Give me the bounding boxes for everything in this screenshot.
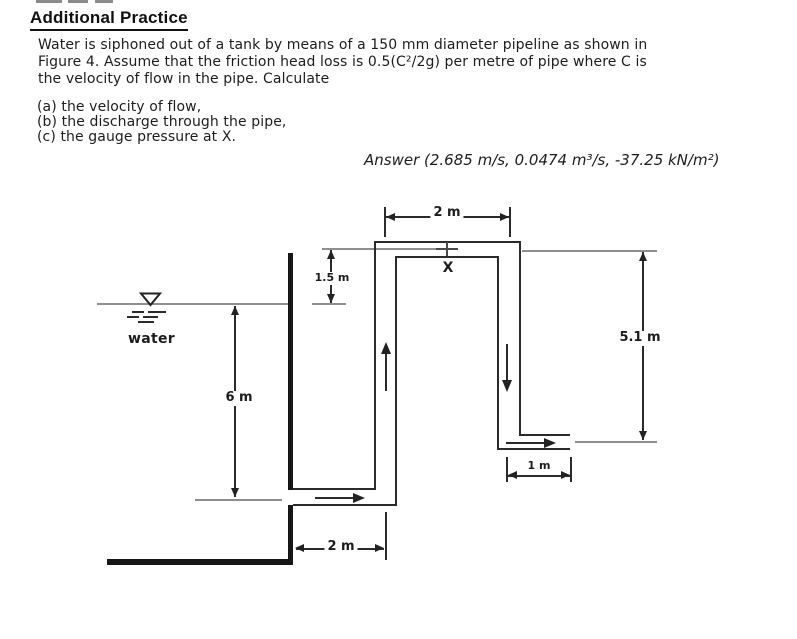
question-item-b: (b) the discharge through the pipe, (37, 115, 286, 130)
cropped-text-artifact (68, 0, 88, 3)
arrow-down-icon (231, 488, 239, 497)
tank-right-wall-upper (288, 253, 293, 490)
dim-bottom-2m-extension-bar (385, 512, 387, 560)
cropped-text-artifact (36, 0, 62, 3)
pipe-outlet-bottom-wall (497, 448, 570, 450)
point-x-label: X (440, 260, 457, 276)
dim-top-2m-right-bar (509, 207, 511, 237)
arrow-up-icon (639, 252, 647, 261)
water-surface-line (97, 303, 288, 305)
dim-5-1m-line (642, 252, 644, 440)
arrow-up-icon (327, 250, 335, 259)
document-page: Additional Practice Water is siphoned ou… (0, 0, 797, 639)
flow-arrow-right-icon (544, 438, 556, 448)
flow-arrow-right-icon (353, 493, 365, 503)
dim-1-5m-label: 1.5 m (312, 272, 353, 285)
arrow-left-icon (295, 544, 304, 552)
water-label: water (128, 331, 175, 347)
arrow-right-icon (375, 544, 384, 552)
dim-5-1m-bottom-reference-line (575, 441, 657, 443)
arrow-right-icon (561, 471, 570, 479)
pipe-bottom-run-bottom-wall (293, 504, 397, 506)
problem-text-line-3: the velocity of flow in the pipe. Calcul… (38, 71, 329, 88)
dim-top-2m-label: 2 m (430, 206, 463, 221)
pipe-downcomer-left-wall (497, 256, 499, 450)
water-ripple-dash (127, 316, 139, 318)
dim-6m-bottom-reference-line (195, 499, 282, 501)
problem-text-line-2: Figure 4. Assume that the friction head … (38, 54, 647, 71)
pipe-outlet-top-wall (519, 434, 570, 436)
water-ripple-dash (148, 311, 166, 313)
tank-floor (107, 559, 293, 565)
pipe-crest-inner-wall (395, 256, 499, 258)
arrow-down-icon (639, 431, 647, 440)
pipe-bottom-run-top-wall (293, 488, 376, 490)
page-title-text: Additional Practice (30, 8, 188, 31)
flow-arrow-downcomer-shaft (506, 344, 508, 382)
pipe-downcomer-right-wall (519, 241, 521, 436)
answer-line: Answer (2.685 m/s, 0.0474 m³/s, -37.25 k… (364, 151, 719, 169)
arrow-down-icon (327, 294, 335, 303)
page-title: Additional Practice (30, 8, 188, 31)
problem-text-line-1: Water is siphoned out of a tank by means… (38, 37, 647, 54)
dim-6m-label: 6 m (222, 391, 255, 406)
pipe-riser-left-wall (374, 242, 376, 490)
pipe-riser-right-wall (395, 256, 397, 506)
flow-arrow-bottom-run-shaft (315, 497, 355, 499)
pipe-crest-centerline-left (322, 248, 436, 250)
dim-1m-right-bar (570, 457, 572, 482)
point-x-marker-vertical (446, 242, 448, 256)
arrow-right-icon (500, 213, 509, 221)
water-surface-marker-icon (139, 292, 163, 307)
arrow-left-icon (386, 213, 395, 221)
dim-5-1m-label: 5.1 m (616, 331, 663, 346)
flow-arrow-riser-shaft (385, 351, 387, 391)
dim-top-2m-left-bar (384, 207, 386, 237)
question-item-c: (c) the gauge pressure at X. (37, 130, 236, 145)
arrow-up-icon (231, 306, 239, 315)
question-item-a: (a) the velocity of flow, (37, 100, 201, 115)
flow-arrow-outlet-shaft (506, 442, 546, 444)
water-ripple-dash (132, 311, 144, 313)
water-ripple-dash (143, 316, 158, 318)
water-ripple-dash (138, 321, 154, 323)
arrow-left-icon (508, 471, 517, 479)
cropped-text-artifact (95, 0, 113, 3)
dim-bottom-2m-label: 2 m (324, 540, 357, 555)
dim-5-1m-top-reference-line (522, 250, 657, 252)
water-level-reference-line (312, 303, 346, 305)
tank-right-wall-lower (288, 505, 293, 564)
flow-arrow-down-icon (502, 380, 512, 392)
dim-1m-label: 1 m (525, 460, 554, 473)
flow-arrow-up-icon (381, 342, 391, 354)
